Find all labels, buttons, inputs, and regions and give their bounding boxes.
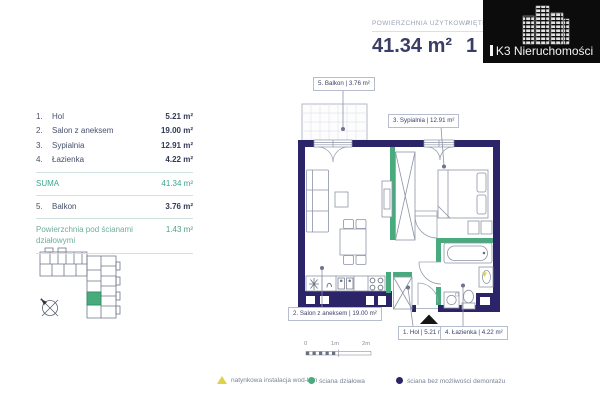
fridge-icon [309,278,319,290]
label-balkon: 5. Balkon | 3.76 m² [313,77,375,91]
divider [36,172,193,173]
sofa [307,170,329,232]
structural-wall-icon [396,377,403,384]
highlighted-unit [87,292,101,305]
partition-wall-icon [308,377,315,384]
water-install-icon [217,376,227,384]
brand-logo: K3 Nieruchomości [483,0,600,63]
table-row: 1. Hol 5.21 m² [36,110,193,124]
nightstands [468,221,492,234]
usable-area-stat: POWIERZCHNIA UŻYTKOWA 41.34 m² [372,12,470,58]
washing-machine [444,292,459,308]
usable-area-value: 41.34 m² [372,35,470,58]
tv-cabinet [382,181,392,217]
bed [438,170,488,218]
buildings-icon [483,0,600,48]
light-wall [415,211,437,216]
scale-1m: 1m [331,341,339,347]
divider [36,218,193,219]
label-salon: 2. Salon z aneksem | 19.00 m² [288,307,382,321]
entrance-arrow [420,315,438,325]
legend-partition-wall: ściana działowa [319,378,365,385]
divider [36,253,193,254]
wardrobe [396,152,416,240]
building-locator [40,248,120,318]
table-row: 3. Sypialnia 12.91 m² [36,139,193,153]
bathtub [444,243,492,263]
usable-area-label: POWIERZCHNIA UŻYTKOWA [372,20,470,32]
scale-0: 0 [304,341,307,347]
coffee-table [335,192,348,207]
floorplan-card: POWIERZCHNIA UŻYTKOWA 41.34 m² PIĘTRO 1 … [0,0,600,408]
legend-structural-wall: ściana bez możliwości demontażu [407,378,505,385]
partition-area-row: Powierzchnia pod ścianami działowymi 1.4… [36,223,193,249]
table-row: 2. Salon z aneksem 19.00 m² [36,124,193,138]
divider [36,195,193,196]
scale-bar [306,350,371,358]
brand-name: K3 Nieruchomości [483,44,600,58]
washbasin [479,267,493,287]
closet [394,277,413,309]
suma-row: SUMA 41.34 m² [36,177,193,191]
legend-water-install: natynkowa instalacja wod-kan [231,377,317,384]
balcony-row: 5. Balkon 3.76 m² [36,200,193,214]
toilet [462,290,475,309]
compass-icon [41,299,59,317]
logo-bar [490,45,493,56]
dining-set [340,220,366,265]
table-row: 4. Łazienka 4.22 m² [36,153,193,167]
rooms-table: 1. Hol 5.21 m² 2. Salon z aneksem 19.00 … [36,110,193,258]
scale-2m: 2m [362,341,370,347]
label-lazienka: 4. Łazienka | 4.22 m² [440,326,508,340]
label-sypialnia: 3. Sypialnia | 12.91 m² [388,114,459,128]
